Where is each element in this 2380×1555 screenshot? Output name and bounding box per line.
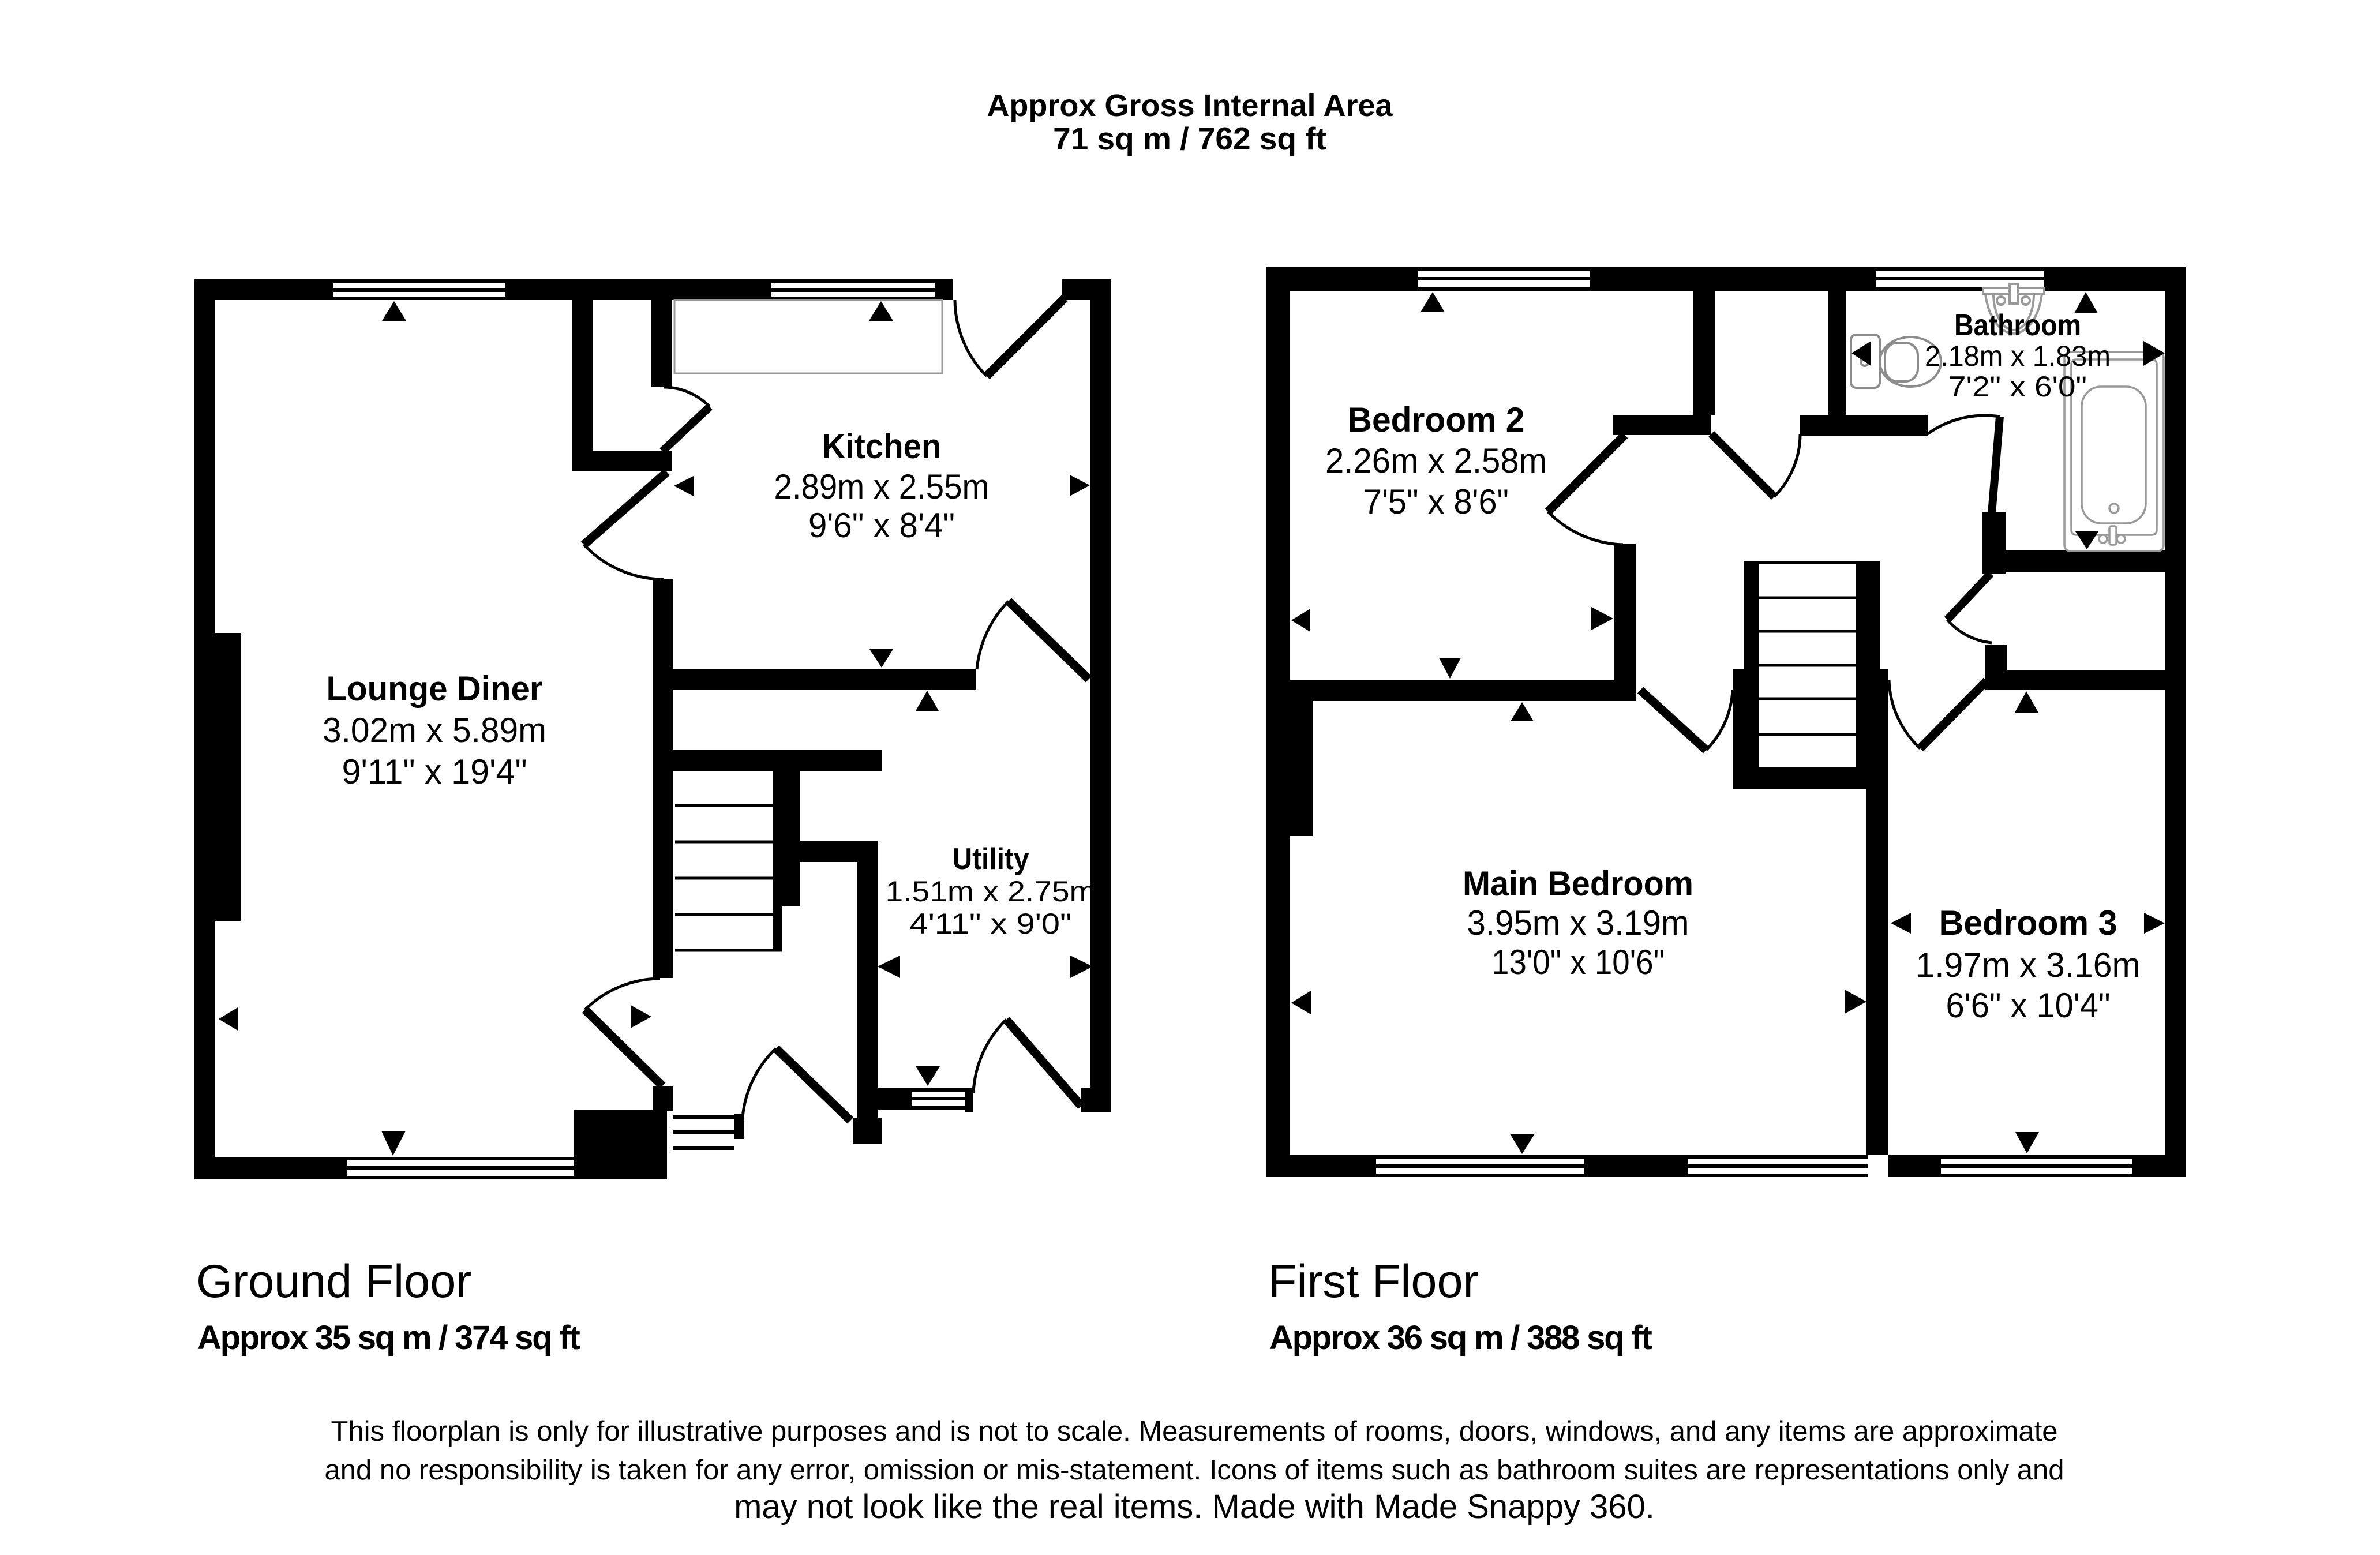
- svg-text:Utility: Utility: [953, 842, 1029, 876]
- svg-text:Lounge Diner: Lounge Diner: [327, 669, 543, 708]
- svg-text:Ground Floor: Ground Floor: [196, 1256, 471, 1307]
- svg-text:Bedroom 3: Bedroom 3: [1939, 904, 2117, 942]
- svg-text:9'6" x 8'4": 9'6" x 8'4": [808, 506, 955, 545]
- svg-text:Bedroom 2: Bedroom 2: [1348, 400, 1525, 439]
- svg-text:7'2" x 6'0": 7'2" x 6'0": [1948, 370, 2087, 403]
- svg-text:1.97m x 3.16m: 1.97m x 3.16m: [1916, 946, 2141, 984]
- svg-text:Kitchen: Kitchen: [822, 427, 942, 466]
- svg-text:may not look like the real ite: may not look like the real items. Made w…: [734, 1488, 1655, 1526]
- svg-text:71 sq m / 762 sq ft: 71 sq m / 762 sq ft: [1053, 121, 1326, 156]
- svg-text:Approx 35 sq m / 374 sq ft: Approx 35 sq m / 374 sq ft: [197, 1319, 580, 1357]
- svg-text:3.02m x 5.89m: 3.02m x 5.89m: [323, 711, 546, 750]
- svg-text:7'5" x 8'6": 7'5" x 8'6": [1363, 482, 1509, 521]
- svg-text:1.51m x 2.75m: 1.51m x 2.75m: [886, 875, 1096, 908]
- svg-text:Main Bedroom: Main Bedroom: [1463, 864, 1693, 903]
- svg-text:Approx 36 sq m / 388 sq ft: Approx 36 sq m / 388 sq ft: [1269, 1319, 1652, 1357]
- svg-text:2.26m x 2.58m: 2.26m x 2.58m: [1325, 441, 1547, 480]
- svg-text:13'0" x 10'6": 13'0" x 10'6": [1491, 943, 1665, 981]
- svg-text:4'11" x 9'0": 4'11" x 9'0": [910, 908, 1072, 940]
- svg-text:First Floor: First Floor: [1268, 1256, 1479, 1307]
- svg-text:9'11" x 19'4": 9'11" x 19'4": [342, 752, 527, 791]
- svg-text:2.18m x 1.83m: 2.18m x 1.83m: [1925, 340, 2111, 372]
- svg-text:2.89m x 2.55m: 2.89m x 2.55m: [774, 467, 990, 506]
- svg-text:This floorplan is only for ill: This floorplan is only for illustrative …: [331, 1416, 2057, 1447]
- svg-text:and no responsibility is taken: and no responsibility is taken for any e…: [325, 1455, 2064, 1486]
- svg-text:6'6" x 10'4": 6'6" x 10'4": [1946, 986, 2111, 1025]
- svg-text:Bathroom: Bathroom: [1954, 309, 2081, 342]
- svg-text:Approx Gross Internal Area: Approx Gross Internal Area: [987, 88, 1393, 123]
- svg-text:3.95m x 3.19m: 3.95m x 3.19m: [1467, 904, 1689, 942]
